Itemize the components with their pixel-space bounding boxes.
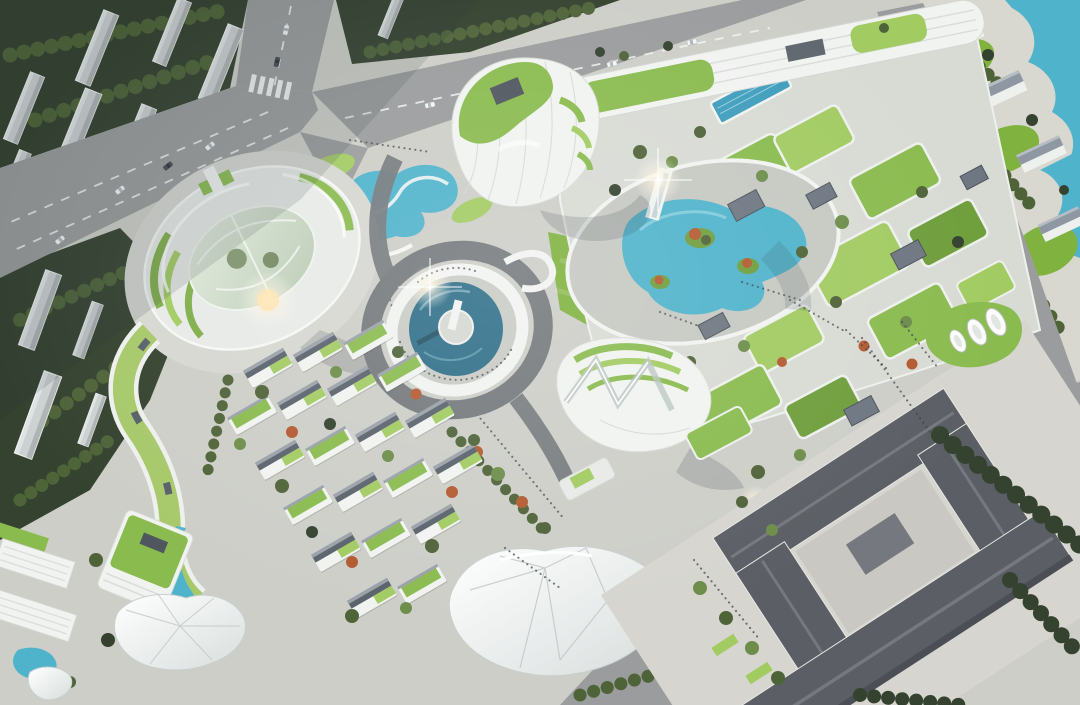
aerial-render [0, 0, 1080, 705]
render-canvas [0, 0, 1080, 705]
